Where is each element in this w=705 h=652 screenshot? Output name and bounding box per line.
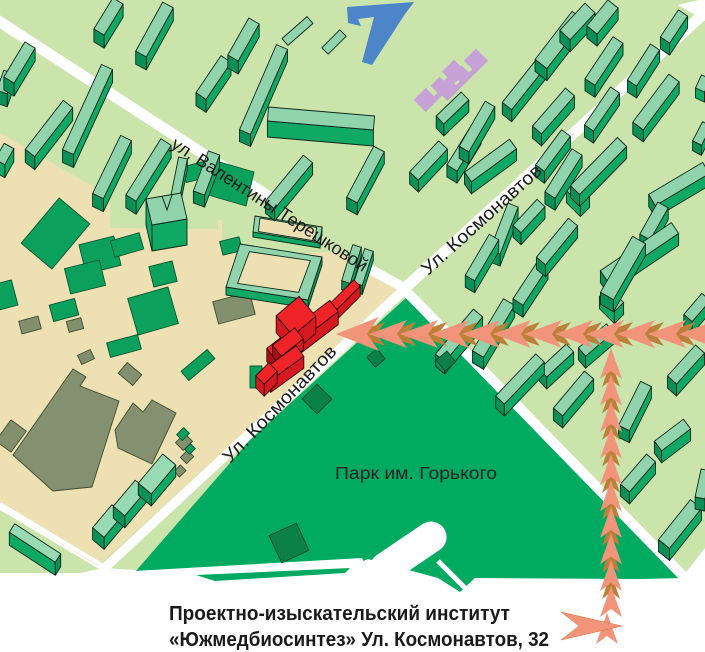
svg-text:Парк им. Горького: Парк им. Горького — [335, 463, 497, 483]
svg-text:Проектно-изыскательский инстит: Проектно-изыскательский институт — [169, 603, 510, 625]
svg-text:«Южмедбиосинтез» Ул. Космонавт: «Южмедбиосинтез» Ул. Космонавтов, 32 — [169, 629, 549, 651]
